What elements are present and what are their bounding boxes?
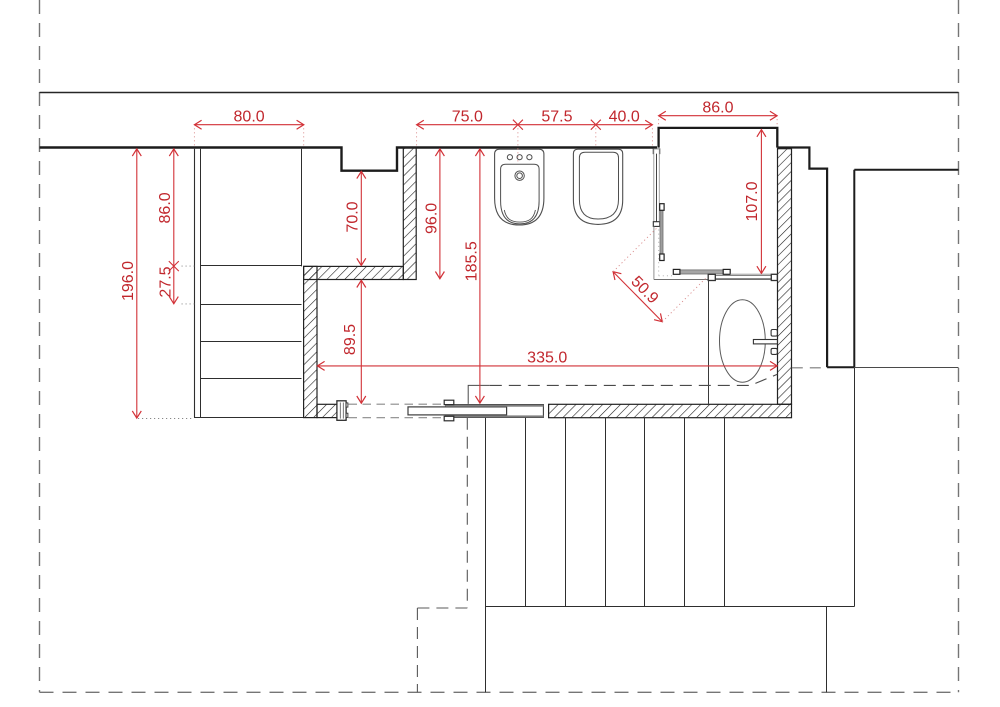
svg-text:75.0: 75.0 xyxy=(452,108,483,125)
svg-text:335.0: 335.0 xyxy=(527,349,567,366)
svg-text:80.0: 80.0 xyxy=(234,108,265,125)
svg-text:185.5: 185.5 xyxy=(463,241,480,281)
svg-text:196.0: 196.0 xyxy=(120,261,137,301)
svg-text:40.0: 40.0 xyxy=(609,108,640,125)
svg-text:96.0: 96.0 xyxy=(423,203,440,234)
svg-text:107.0: 107.0 xyxy=(744,181,761,221)
svg-text:89.5: 89.5 xyxy=(342,324,359,355)
svg-text:27.5: 27.5 xyxy=(158,266,175,297)
svg-text:86.0: 86.0 xyxy=(702,99,733,116)
svg-text:86.0: 86.0 xyxy=(157,192,174,223)
svg-text:70.0: 70.0 xyxy=(345,201,362,232)
svg-text:57.5: 57.5 xyxy=(541,108,572,125)
